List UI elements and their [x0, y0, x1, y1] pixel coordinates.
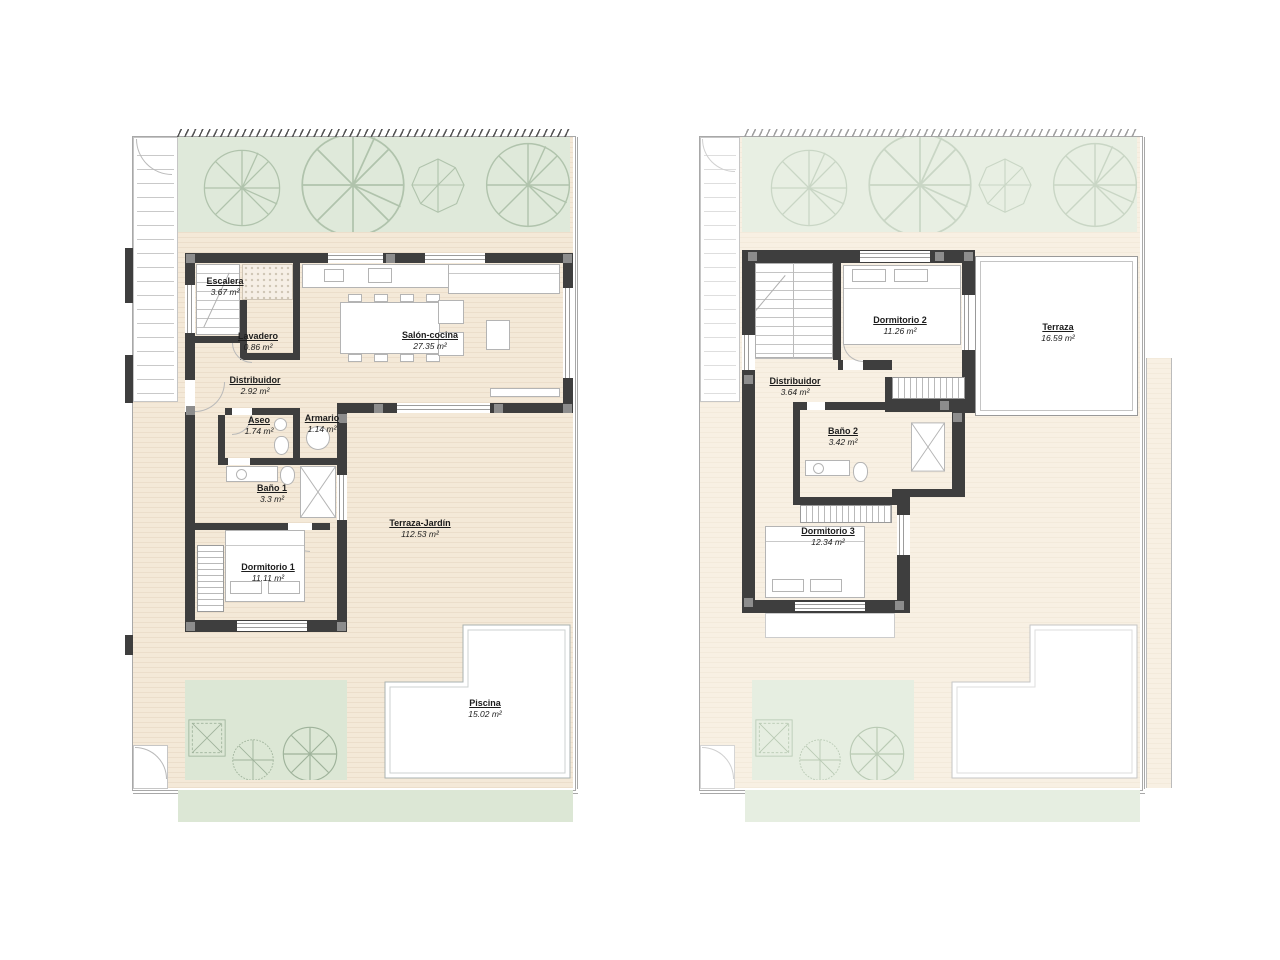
pillar [940, 401, 949, 410]
chair [374, 294, 388, 302]
window [795, 602, 865, 611]
landing-edge [755, 358, 833, 359]
pillar [748, 252, 757, 261]
tree-icon [848, 725, 906, 780]
tree-icon [299, 137, 407, 232]
kitchen-hob [368, 268, 392, 283]
staircase [755, 263, 833, 358]
room-name: Lavadero [203, 331, 313, 342]
bath-counter [226, 466, 278, 482]
street-green-band [745, 790, 1140, 822]
room-area: 1.14 m² [287, 424, 357, 435]
room-name: Piscina [440, 698, 530, 709]
tree-icon [974, 154, 1036, 216]
room-area: 11.26 m² [845, 326, 955, 337]
room-label-distribuidor: Distribuidor 2.92 m² [200, 375, 310, 397]
tree-icon [407, 154, 469, 216]
staircase [196, 264, 240, 335]
room-label-salon-cocina: Salón-cocina 27.35 m² [375, 330, 485, 352]
window-slider [397, 403, 490, 413]
ground-floor-plan: Escalera 3.67 m² Lavadero 0.86 m² Salón-… [128, 130, 608, 830]
room-name: Baño 2 [798, 426, 888, 437]
room-name: Dormitorio 1 [213, 562, 323, 573]
stair-partition [833, 263, 841, 360]
room-area: 3.3 m² [232, 494, 312, 505]
chair [400, 294, 414, 302]
pillar [337, 622, 346, 631]
boundary-wall-segment [125, 248, 133, 303]
kitchen-sink [324, 269, 344, 282]
fence-line [175, 129, 570, 137]
wardrobe [800, 505, 892, 523]
room-area: 15.02 m² [440, 709, 530, 720]
window [328, 253, 383, 263]
tree-icon [281, 725, 339, 780]
room-name: Terraza-Jardín [360, 518, 480, 529]
room-label-dormitorio2: Dormitorio 2 11.26 m² [845, 315, 955, 337]
bano2-south-wall [793, 497, 900, 505]
room-name: Distribuidor [740, 376, 850, 387]
washbasin [236, 469, 247, 480]
toilet [853, 462, 868, 482]
garden-strip [742, 137, 1137, 232]
washbasin [813, 463, 824, 474]
pillar [953, 413, 962, 422]
pillow [772, 579, 804, 592]
room-area: 16.59 m² [1003, 333, 1113, 344]
room-area: 1.74 m² [224, 426, 294, 437]
door-opening [807, 402, 825, 410]
sofa-seat-line [449, 273, 559, 274]
room-label-distribuidor: Distribuidor 3.64 m² [740, 376, 850, 398]
window [563, 288, 573, 378]
planter-icon [755, 718, 793, 758]
sideboard [490, 388, 560, 397]
room-area: 11.11 m² [213, 573, 323, 584]
bano2-south-wall [892, 489, 965, 497]
exterior-wall-right [952, 410, 965, 490]
step-treads [137, 142, 174, 397]
garden-patch [752, 680, 914, 780]
first-floor-plan: Dormitorio 2 11.26 m² Terraza 16.59 m² D… [695, 130, 1175, 830]
shower-icon [911, 422, 945, 472]
room-label-piscina: Piscina 15.02 m² [440, 698, 530, 720]
balcony-ledge [765, 613, 895, 638]
room-name: Dormitorio 2 [845, 315, 955, 326]
tree-icon [484, 141, 570, 229]
chair [348, 354, 362, 362]
room-area: 3.42 m² [798, 437, 888, 448]
room-label-dormitorio3: Dormitorio 3 12.34 m² [773, 526, 883, 548]
pillar [186, 406, 195, 415]
room-name: Baño 1 [232, 483, 312, 494]
fence-line [742, 129, 1137, 137]
pillar [494, 404, 503, 413]
tree-icon [202, 148, 282, 228]
window [237, 621, 307, 631]
room-area: 2.92 m² [200, 386, 310, 397]
floorplan-sheet: Escalera 3.67 m² Lavadero 0.86 m² Salón-… [0, 0, 1280, 960]
side-walkway-steps [133, 137, 178, 402]
planter-icon [188, 718, 226, 758]
sofa [448, 264, 560, 294]
pillar [374, 404, 383, 413]
tree-icon [866, 137, 974, 232]
room-label-armario: Armario 1.14 m² [287, 413, 357, 435]
room-label-escalera: Escalera 3.67 m² [170, 276, 280, 298]
room-label-terraza-jardin: Terraza-Jardín 112.53 m² [360, 518, 480, 540]
bath-counter [805, 460, 850, 476]
room-name: Salón-cocina [375, 330, 485, 341]
chair [348, 294, 362, 302]
armchair [438, 300, 464, 324]
pillar [744, 598, 753, 607]
step-treads [704, 142, 736, 397]
room-name: Distribuidor [200, 375, 310, 386]
pillar [895, 601, 904, 610]
wing-east-wall [337, 413, 347, 632]
chair [400, 354, 414, 362]
blanket-line [844, 288, 960, 289]
pillar [935, 252, 944, 261]
tree-icon [798, 738, 842, 780]
chair [374, 354, 388, 362]
room-area: 27.35 m² [375, 341, 485, 352]
blanket-line [226, 545, 304, 546]
boundary-wall-segment [125, 355, 133, 403]
pillar [186, 622, 195, 631]
window [337, 475, 347, 520]
street-green-band [178, 790, 573, 822]
room-area: 3.67 m² [170, 287, 280, 298]
wardrobe [892, 377, 965, 399]
tree-icon [1051, 141, 1137, 229]
pillar [186, 254, 195, 263]
neighbor-strip [1146, 358, 1172, 788]
window [962, 295, 975, 350]
door-opening [232, 408, 252, 415]
room-label-dormitorio1: Dormitorio 1 11.11 m² [213, 562, 323, 584]
room-name: Armario [287, 413, 357, 424]
pillar [386, 254, 395, 263]
room-name: Escalera [170, 276, 280, 287]
stair-center-line [793, 263, 794, 358]
window [742, 335, 755, 370]
door-opening [288, 523, 312, 530]
coffee-table [486, 320, 510, 350]
room-label-aseo: Aseo 1.74 m² [224, 415, 294, 437]
side-walkway-steps [700, 137, 740, 402]
tree-icon [231, 738, 275, 780]
pool-shape-ghost [950, 623, 1140, 781]
room-label-bano2: Baño 2 3.42 m² [798, 426, 888, 448]
tree-icon [769, 148, 849, 228]
toilet [274, 436, 289, 455]
boundary-wall-segment [125, 635, 133, 655]
room-area: 12.34 m² [773, 537, 883, 548]
room-label-bano1: Baño 1 3.3 m² [232, 483, 312, 505]
pillar [964, 252, 973, 261]
pillow [810, 579, 842, 592]
wardrobe-stub-wall [885, 377, 892, 399]
exterior-wall-left [742, 250, 755, 613]
window [860, 251, 930, 262]
room-area: 112.53 m² [360, 529, 480, 540]
pillow [852, 269, 886, 282]
garden-strip [175, 137, 570, 232]
room-area: 0.86 m² [203, 342, 313, 353]
room-name: Dormitorio 3 [773, 526, 883, 537]
pillow [894, 269, 928, 282]
room-area: 3.64 m² [740, 387, 850, 398]
garden-patch [185, 680, 347, 780]
room-name: Terraza [1003, 322, 1113, 333]
bano2-west-wall [793, 402, 800, 497]
plot-boundary-double-line [1144, 137, 1145, 789]
pillar [563, 254, 572, 263]
plot-boundary-double-line [577, 137, 578, 789]
pillar [563, 404, 572, 413]
window [897, 515, 910, 555]
door-opening [228, 458, 250, 465]
window [425, 253, 485, 263]
room-label-lavadero: Lavadero 0.86 m² [203, 331, 313, 353]
room-name: Aseo [224, 415, 294, 426]
room-label-terraza: Terraza 16.59 m² [1003, 322, 1113, 344]
